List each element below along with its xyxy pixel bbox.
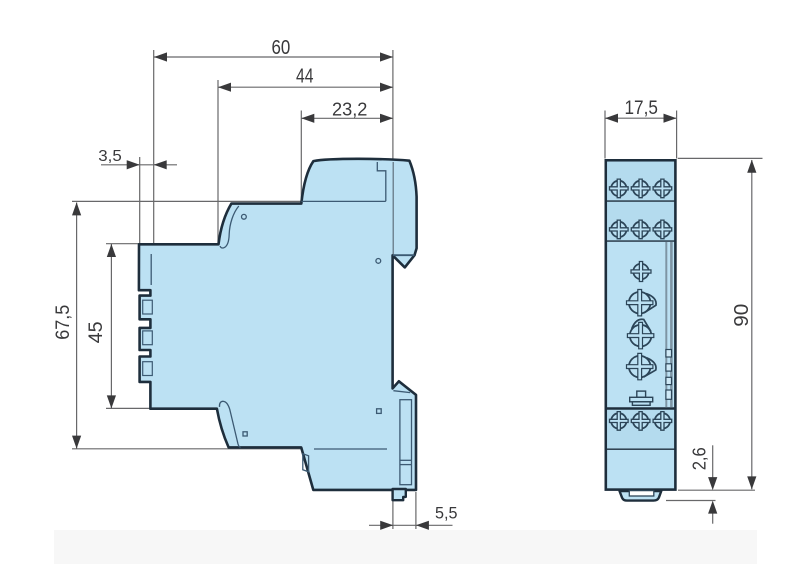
svg-text:17,5: 17,5 <box>625 97 659 119</box>
svg-text:45: 45 <box>85 321 107 343</box>
svg-text:90: 90 <box>731 304 753 327</box>
svg-text:3,5: 3,5 <box>98 148 122 165</box>
svg-text:67,5: 67,5 <box>52 305 74 340</box>
svg-text:23,2: 23,2 <box>332 100 367 120</box>
svg-text:44: 44 <box>296 66 314 88</box>
svg-text:60: 60 <box>272 37 291 59</box>
svg-text:2,6: 2,6 <box>690 447 710 470</box>
svg-text:5,5: 5,5 <box>435 504 458 523</box>
